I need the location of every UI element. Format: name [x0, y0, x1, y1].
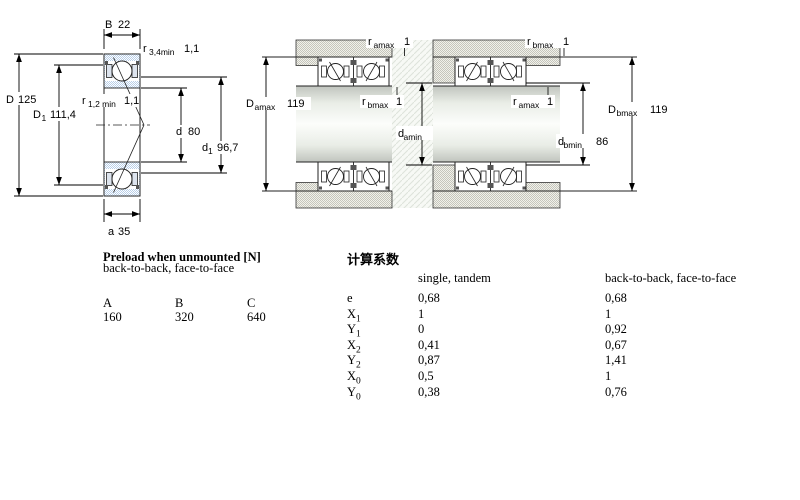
cage-mark [107, 173, 113, 186]
dim-D1-value: 111,4 [50, 109, 76, 121]
dim-D-value: 125 [18, 94, 36, 106]
bearing-datasheet-page: B 22 r 3,4min 1,1 D 125 D 1 111,4 r 1,2 … [0, 0, 800, 500]
preload-column-headers: ABC [103, 296, 319, 311]
ball-upper [112, 61, 132, 81]
housing-bottom [433, 191, 560, 208]
factors-title: 计算系数 [347, 249, 747, 268]
shaft-break-hatch [392, 40, 433, 208]
housing-shoulder [296, 183, 318, 192]
dim-rbmax-symbol: r [527, 36, 531, 48]
dim-r34-value: 1,1 [184, 43, 199, 55]
dim-ramax-value: 1 [404, 36, 410, 48]
preload-col-c: C [247, 296, 319, 311]
dim-Damax-symbol: D [246, 98, 254, 110]
housing-shoulder [296, 57, 318, 66]
dim-dbmin-sub: bmin [564, 140, 583, 150]
preload-values: 160320640 [103, 310, 319, 325]
mounted-arrangement-b: r bmax 1 r amax 1 d bmin 86 D bmax 119 [433, 35, 668, 208]
preload-subtitle: back-to-back, face-to-face [103, 261, 234, 276]
dim-rbmax-sub: bmax [368, 100, 390, 110]
calculation-factors-table: 计算系数 single, tandem back-to-back, face-t… [347, 249, 747, 409]
bearing-pair-bottom [318, 162, 389, 191]
dim-ramax-sub: amax [519, 100, 541, 110]
dim-B-value: 22 [118, 19, 130, 31]
seal-mark [105, 185, 108, 189]
dim-Dbmax-sub: bmax [617, 108, 639, 118]
seal-mark [136, 185, 139, 189]
dim-ramax-symbol: r [368, 36, 372, 48]
ball [328, 169, 344, 185]
preload-col-a: A [103, 296, 175, 311]
preload-col-b: B [175, 296, 247, 311]
dim-r34-sub: 3,4min [149, 47, 175, 57]
abutment-block [433, 57, 455, 83]
ball [328, 64, 344, 80]
dim-ramax-value: 1 [547, 96, 553, 108]
bearing-pair-top [455, 57, 526, 86]
dim-D-symbol: D [6, 94, 14, 106]
cage-mark [132, 65, 138, 78]
ball-lower [112, 169, 132, 189]
dim-a-symbol: a [108, 226, 115, 238]
dim-B-symbol: B [105, 19, 112, 31]
dim-r12-value: 1,1 [124, 95, 139, 107]
dim-rbmax-value: 1 [396, 96, 402, 108]
dim-r34-symbol: r [143, 43, 147, 55]
dim-Dbmax-value: 119 [650, 104, 668, 116]
seal-mark [136, 61, 139, 65]
bearing-pair-bottom [455, 162, 526, 191]
abutment-block [433, 165, 455, 191]
bearing-pair-top [318, 57, 389, 86]
preload-value-a: 160 [103, 310, 175, 325]
dim-r12-sub: 1,2 min [88, 99, 116, 109]
seal-mark [105, 61, 108, 65]
cage-mark [132, 173, 138, 186]
dim-r12-symbol: r [82, 95, 86, 107]
dim-damin-sub: amin [404, 132, 423, 142]
factors-col2-header: back-to-back, face-to-face [605, 271, 736, 286]
dim-d1-sub: 1 [208, 146, 213, 156]
preload-value-b: 320 [175, 310, 247, 325]
dim-Damax-sub: amax [255, 102, 277, 112]
dim-ramax-symbol: r [513, 96, 517, 108]
ball [465, 169, 481, 185]
dim-rbmax-sub: bmax [533, 40, 555, 50]
dim-Dbmax-symbol: D [608, 104, 616, 116]
bearing-drawings: B 22 r 3,4min 1,1 D 125 D 1 111,4 r 1,2 … [0, 0, 800, 246]
housing-bottom [296, 191, 392, 208]
dim-a-value: 35 [118, 226, 130, 238]
dim-D1-sub: 1 [42, 113, 47, 123]
ball [465, 64, 481, 80]
single-bearing-section [96, 54, 150, 196]
preload-value-c: 640 [247, 310, 319, 325]
dim-D1-symbol: D [33, 109, 41, 121]
mounted-arrangement-a: r amax 1 r bmax 1 D amax 119 d amin 86 [244, 35, 464, 208]
factors-col1-header: single, tandem [418, 271, 491, 286]
preload-table: Preload when unmounted [N] back-to-back,… [103, 250, 323, 330]
housing-shoulder [526, 183, 560, 192]
dim-dbmin-value: 86 [596, 136, 608, 148]
dim-d-value: 80 [188, 126, 200, 138]
cage-mark [107, 65, 113, 78]
dim-Damax-value: 119 [287, 98, 305, 110]
dim-d1-value: 96,7 [217, 142, 238, 154]
dim-rbmax-value: 1 [563, 36, 569, 48]
dim-rbmax-symbol: r [362, 96, 366, 108]
dim-ramax-sub: amax [374, 40, 396, 50]
dim-d-symbol: d [176, 126, 182, 138]
housing-shoulder [526, 57, 560, 66]
